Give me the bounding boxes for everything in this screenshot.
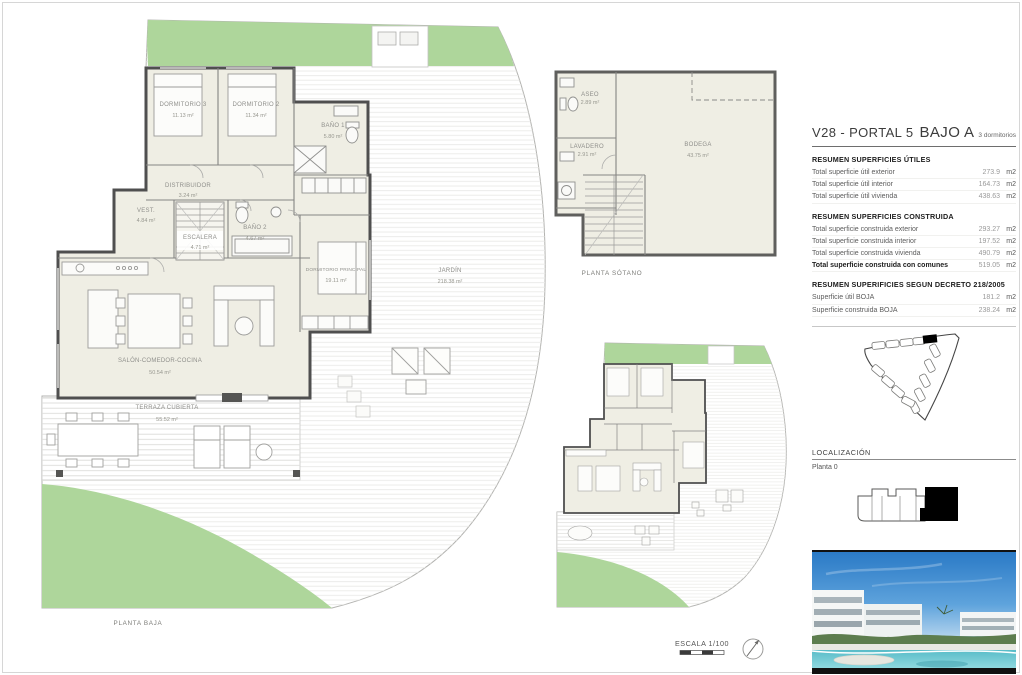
room-area: 55.52 m² bbox=[156, 417, 178, 423]
portal-code: V28 - PORTAL 5 bbox=[812, 125, 913, 140]
summary-row-total: Total superficie construida con comunes … bbox=[812, 260, 1016, 272]
room-label: DISTRIBUIDOR bbox=[165, 183, 211, 189]
building-footprint-diagram bbox=[812, 479, 1016, 539]
section-title-decreto: RESUMEN SUPERIFICIES SEGUN DECRETO 218/2… bbox=[812, 280, 1016, 289]
summary-row: Total superficie útil interior 164.73 m2 bbox=[812, 179, 1016, 191]
summary-row: Superficie construida BOJA 238.24 m2 bbox=[812, 305, 1016, 317]
highlighted-building bbox=[923, 334, 938, 343]
section-title-construida: RESUMEN SUPERFICIES CONSTRUIDA bbox=[812, 212, 1016, 221]
room-area: 4.71 m² bbox=[191, 245, 210, 251]
room-label: DORMITORIO 3 bbox=[160, 102, 207, 108]
staircase bbox=[176, 202, 224, 260]
basement-plan: ASEO 2.89 m² LAVADERO 2.91 m² BODEGA 43.… bbox=[540, 60, 800, 290]
scale-indicator: ESCALA 1/100 bbox=[630, 633, 800, 675]
room-label: VEST. bbox=[137, 208, 155, 214]
scale-label: ESCALA 1/100 bbox=[675, 639, 729, 648]
summary-row: Superficie útil BOJA 181.2 m2 bbox=[812, 292, 1016, 304]
room-area: 5.80 m² bbox=[324, 134, 343, 140]
room-area: 3.24 m² bbox=[179, 193, 198, 199]
room-label: BAÑO 2 bbox=[243, 224, 267, 231]
localizacion-title: LOCALIZACIÓN bbox=[812, 448, 1016, 460]
plan-sheet: DORMITORIO 3 11.13 m² DORMITORIO 2 11.34… bbox=[0, 0, 1022, 675]
green-area-top bbox=[146, 18, 514, 66]
room-area: 11.34 m² bbox=[245, 113, 266, 119]
ground-floor-plan: DORMITORIO 3 11.13 m² DORMITORIO 2 11.34… bbox=[0, 0, 560, 675]
room-area: 4.84 m² bbox=[137, 218, 156, 224]
room-area: 2.89 m² bbox=[581, 100, 600, 106]
room-label: DORMITORIO 2 bbox=[233, 102, 280, 108]
pool-island bbox=[834, 655, 894, 665]
room-area: 50.54 m² bbox=[149, 370, 171, 376]
summary-row: Total superficie útil vivienda 438.63 m2 bbox=[812, 191, 1016, 203]
pool-shadow bbox=[916, 660, 968, 667]
north-compass bbox=[743, 639, 763, 659]
unit-name: BAJO A bbox=[919, 124, 974, 141]
room-label: LAVADERO bbox=[570, 144, 604, 150]
highlighted-unit bbox=[920, 487, 958, 521]
plan-caption: PLANTA SÓTANO bbox=[582, 268, 643, 277]
pool-deck bbox=[812, 644, 1016, 651]
building-photo bbox=[812, 550, 1016, 674]
room-area: 2.91 m² bbox=[578, 152, 597, 158]
room-label: BAÑO 1 bbox=[321, 122, 345, 129]
summary-row: Total superficie construida interior 197… bbox=[812, 236, 1016, 248]
ac-unit bbox=[400, 32, 418, 45]
room-area: 4.67 m² bbox=[246, 236, 265, 242]
room-area: 43.75 m² bbox=[687, 153, 709, 159]
localizacion-planta: Planta 0 bbox=[812, 464, 1016, 471]
overview-plan bbox=[540, 330, 800, 630]
room-label: ASEO bbox=[581, 92, 599, 98]
ac-unit bbox=[378, 32, 396, 45]
room-area: 19.11 m² bbox=[325, 278, 346, 284]
unit-subtitle: 3 dormitorios bbox=[978, 132, 1016, 139]
room-label: DORMITORIO PRINCIPAL bbox=[306, 267, 367, 273]
summary-row: Total superficie construida exterior 293… bbox=[812, 224, 1016, 236]
room-area: 218.38 m² bbox=[438, 279, 463, 285]
info-panel: V28 - PORTAL 5 BAJO A 3 dormitorios RESU… bbox=[812, 124, 1016, 674]
room-label: ESCALERA bbox=[183, 235, 217, 241]
room-label: TERRAZA CUBIERTA bbox=[135, 405, 198, 411]
scale-bar bbox=[680, 651, 724, 655]
plan-caption: PLANTA BAJA bbox=[114, 620, 163, 627]
sliding-door-leaf bbox=[222, 393, 242, 402]
summary-row: Total superficie construida vivienda 490… bbox=[812, 248, 1016, 260]
room-area: 11.13 m² bbox=[172, 113, 193, 119]
room-label: JARDÍN bbox=[438, 267, 461, 274]
column bbox=[56, 470, 63, 477]
site-plan-diagram bbox=[812, 327, 1016, 439]
summary-row: Total superficie útil exterior 273.9 m2 bbox=[812, 167, 1016, 179]
column bbox=[293, 470, 300, 477]
unit-header: V28 - PORTAL 5 BAJO A 3 dormitorios bbox=[812, 124, 1016, 141]
room-label: BODEGA bbox=[684, 142, 711, 148]
header-rule bbox=[812, 146, 1016, 147]
room-label: SALÓN-COMEDOR-COCINA bbox=[118, 357, 202, 364]
section-title-utiles: RESUMEN SUPERFICIES ÚTILES bbox=[812, 155, 1016, 164]
green-area-top bbox=[604, 343, 772, 364]
